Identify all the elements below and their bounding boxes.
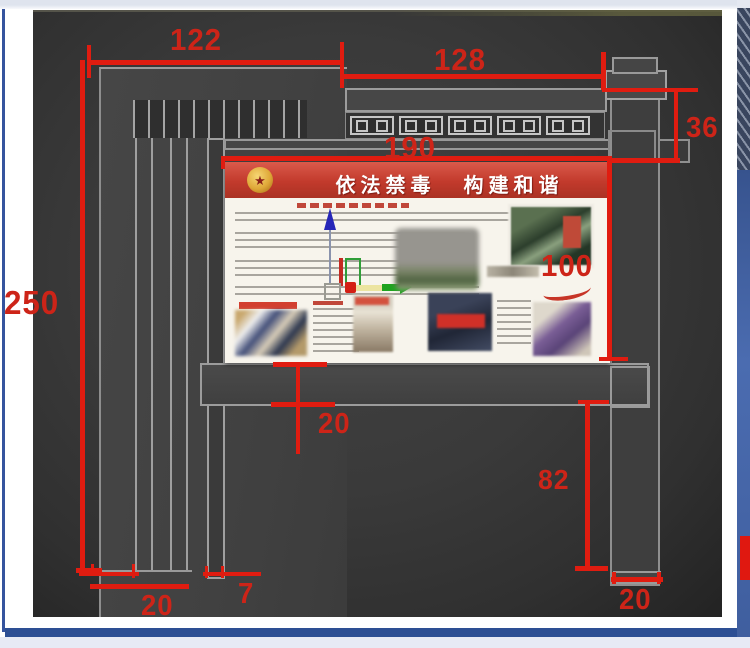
dim-190-label: 190	[384, 132, 436, 163]
dim-36-line	[674, 88, 678, 162]
shelf-bracket	[610, 366, 650, 408]
dim-250-line	[80, 60, 85, 572]
dim-20-right-tick-right	[657, 572, 661, 584]
dim-36-tick-bottom	[608, 158, 680, 163]
top-beam	[345, 88, 607, 112]
dim-122-tick-right	[340, 42, 344, 88]
dim-20-shelf-line	[296, 362, 300, 454]
dim-100-label: 100	[541, 250, 593, 281]
ucs-axis-line	[329, 230, 331, 284]
slat-line	[151, 138, 153, 572]
dim-20-left-leader	[90, 584, 189, 589]
text-red-lead	[313, 301, 343, 305]
dim-100-tick-bottom	[599, 357, 628, 361]
photo-panorama	[487, 266, 539, 277]
canvas-top-tint	[390, 10, 722, 16]
dim-82-line	[585, 402, 590, 570]
top-rail	[224, 139, 656, 150]
photo-overlay-text	[355, 297, 389, 305]
ucs-origin-dot	[345, 282, 356, 293]
dim-7-label: 7	[238, 580, 254, 609]
dim-20-shelf-cross	[271, 402, 335, 407]
dim-100-line	[607, 156, 612, 361]
dim-20-left-label: 20	[141, 592, 174, 621]
photo-blurred-center	[395, 228, 479, 290]
left-support-leg	[207, 138, 225, 579]
page-top-strip	[0, 0, 750, 9]
ucs-red-bar	[339, 258, 343, 286]
slat-line	[135, 138, 137, 572]
dim-122-label: 122	[170, 24, 222, 55]
dim-36-tick-top	[602, 88, 698, 92]
dim-82-tick-bottom	[575, 566, 608, 571]
dim-128-label: 128	[434, 44, 486, 75]
right-column-head	[605, 70, 667, 100]
dim-20-right-tick-left	[612, 572, 616, 584]
slat-line	[170, 138, 172, 572]
dim-122-line	[88, 60, 344, 65]
dim-128-tick-right	[601, 52, 606, 90]
page-bottom-lavender-strip	[0, 637, 750, 648]
dim-20-shelf-tick-top	[273, 362, 327, 367]
poster-section-title	[297, 203, 409, 208]
right-strip-photo-fragment	[737, 8, 750, 170]
dim-20-right-line	[611, 577, 663, 582]
ucs-yellow-bar	[356, 285, 382, 291]
right-column-cap	[612, 57, 658, 74]
banner-text-left: 依法禁毒	[336, 169, 436, 198]
page-bottom-blue-bar	[5, 628, 737, 637]
ucs-gray-box	[324, 283, 341, 300]
slat-band	[133, 100, 307, 138]
dim-20-left-line	[79, 572, 139, 576]
poster-paragraph	[497, 300, 531, 346]
dim-20-right-label: 20	[619, 586, 652, 615]
slat-line	[186, 138, 188, 572]
ucs-z-arrow-icon	[324, 208, 336, 230]
banner-text-right: 构建和谐	[464, 169, 564, 198]
national-emblem-icon: ★	[247, 167, 273, 193]
photo-collage	[235, 310, 307, 356]
dim-7-line	[203, 572, 261, 576]
dim-82-label: 82	[538, 466, 569, 494]
photo-purple-figure	[533, 302, 591, 356]
lattice-cell	[497, 116, 541, 135]
photo-caption-bar	[239, 302, 297, 309]
right-strip-top	[737, 0, 750, 8]
right-column	[610, 95, 660, 586]
poster-banner: ★ 依法禁毒 构建和谐	[225, 162, 610, 198]
dim-36-label: 36	[686, 114, 719, 143]
photo-caption-block	[563, 216, 581, 248]
dim-250-label: 250	[4, 286, 59, 319]
dim-82-tick-top	[578, 400, 609, 404]
right-edge-red-fragment	[740, 536, 750, 580]
lattice-cell	[448, 116, 492, 135]
dim-190-tick-left	[221, 156, 225, 169]
dim-20-shelf-label: 20	[318, 410, 351, 439]
photo-red-banner-text	[437, 314, 485, 328]
poster-banner-title: 依法禁毒 构建和谐	[295, 169, 604, 198]
lattice-cell	[546, 116, 590, 135]
dim-122-tick-left	[87, 45, 91, 78]
